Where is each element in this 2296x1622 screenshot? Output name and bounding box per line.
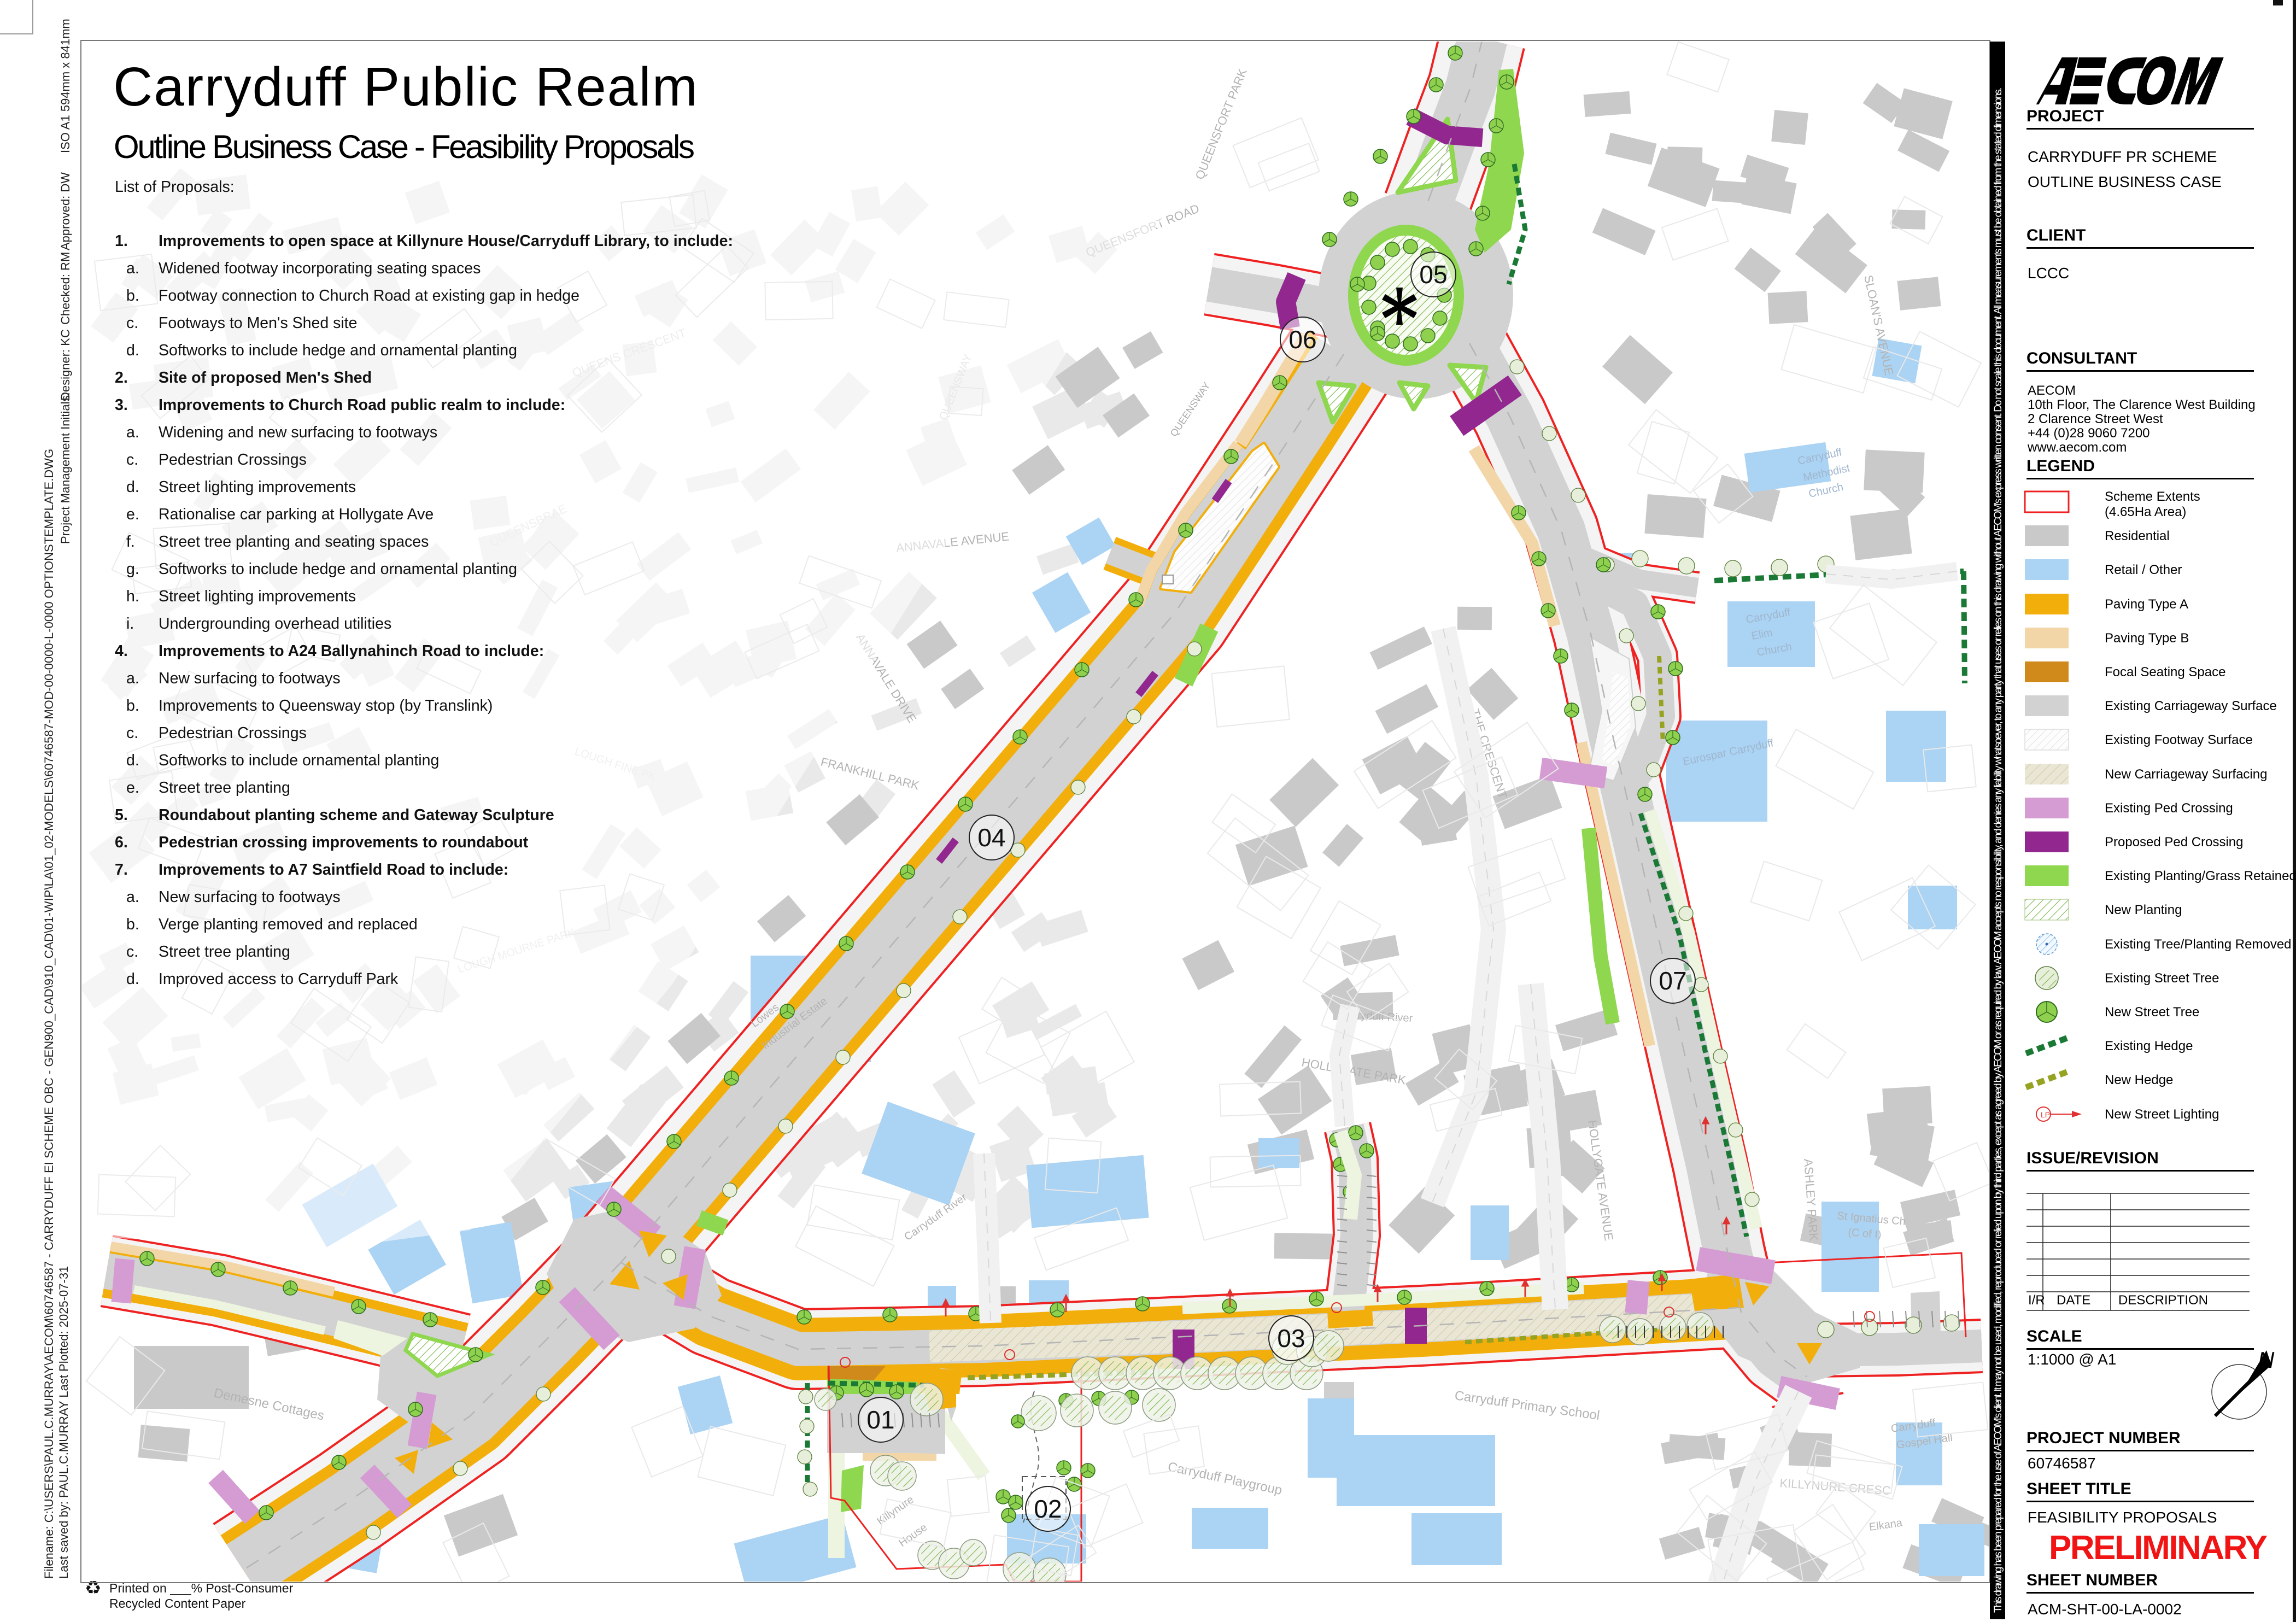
- svg-text:Widening and new surfacing to: Widening and new surfacing to footways: [159, 424, 437, 441]
- svg-text:c.: c.: [126, 943, 138, 961]
- svg-text:02: 02: [1034, 1495, 1062, 1523]
- svg-text:Existing Street Tree: Existing Street Tree: [2105, 971, 2219, 986]
- svg-text:New surfacing to footways: New surfacing to footways: [159, 888, 341, 906]
- svg-text:2 Clarence Street West: 2 Clarence Street West: [2028, 412, 2163, 426]
- svg-text:Retail / Other: Retail / Other: [2105, 563, 2182, 577]
- svg-text:CARRYDUFF PR SCHEME: CARRYDUFF PR SCHEME: [2028, 148, 2217, 165]
- svg-text:Improvements to A7 Saintfield: Improvements to A7 Saintfield Road to in…: [159, 861, 508, 879]
- svg-text:Designer: KC: Designer: KC: [58, 329, 72, 401]
- svg-text:10th Floor, The Clarence West: 10th Floor, The Clarence West Building: [2028, 397, 2256, 412]
- svg-text:New Street Lighting: New Street Lighting: [2105, 1107, 2219, 1122]
- svg-text:Undergrounding overhead utilit: Undergrounding overhead utilities: [159, 615, 391, 633]
- svg-text:CONSULTANT: CONSULTANT: [2026, 349, 2137, 367]
- svg-text:Footways to Men's Shed site: Footways to Men's Shed site: [159, 314, 357, 332]
- svg-text:Filename: C:\USERS\PAUL.C.MURR: Filename: C:\USERS\PAUL.C.MURRAY\AECOM\6…: [42, 449, 56, 1579]
- svg-text:DESCRIPTION: DESCRIPTION: [2118, 1293, 2208, 1308]
- svg-text:b.: b.: [126, 916, 139, 933]
- svg-text:Street tree planting: Street tree planting: [159, 779, 290, 797]
- svg-text:Approved: DW: Approved: DW: [58, 172, 72, 250]
- svg-text:CLIENT: CLIENT: [2026, 226, 2086, 244]
- svg-text:Proposed Ped Crossing: Proposed Ped Crossing: [2105, 835, 2243, 850]
- svg-text:c.: c.: [126, 451, 138, 469]
- svg-text:Street lighting improvements: Street lighting improvements: [159, 478, 356, 496]
- svg-text:2.: 2.: [115, 369, 128, 387]
- svg-text:Outline Business Case - Feasib: Outline Business Case - Feasibility Prop…: [114, 128, 695, 165]
- svg-text:h.: h.: [126, 588, 139, 605]
- svg-text:DATE: DATE: [2057, 1293, 2090, 1308]
- svg-text:New surfacing to footways: New surfacing to footways: [159, 670, 341, 687]
- svg-text:ACM-SHT-00-LA-0002: ACM-SHT-00-LA-0002: [2028, 1601, 2182, 1618]
- svg-text:b.: b.: [126, 697, 139, 715]
- svg-text:LEGEND: LEGEND: [2026, 457, 2095, 475]
- svg-text:a.: a.: [126, 260, 139, 277]
- svg-text:07: 07: [1659, 967, 1686, 995]
- svg-text:1:1000 @ A1: 1:1000 @ A1: [2028, 1351, 2116, 1368]
- svg-text:PROJECT: PROJECT: [2026, 107, 2104, 125]
- svg-text:3.: 3.: [115, 396, 128, 414]
- svg-text:c.: c.: [126, 724, 138, 742]
- svg-text:Pedestrian Crossings: Pedestrian Crossings: [159, 451, 307, 469]
- svg-text:i.: i.: [126, 615, 134, 633]
- svg-text:SCALE: SCALE: [2026, 1327, 2082, 1345]
- svg-text:f.: f.: [126, 533, 135, 551]
- svg-text:www.aecom.com: www.aecom.com: [2027, 440, 2127, 455]
- svg-text:Improvements to A24 Ballynahin: Improvements to A24 Ballynahinch Road to…: [159, 642, 544, 660]
- svg-text:04: 04: [977, 823, 1005, 852]
- svg-text:Improved access to Carryduff P: Improved access to Carryduff Park: [159, 970, 399, 988]
- svg-text:This drawing has been prepared: This drawing has been prepared for the u…: [1993, 87, 2004, 1613]
- svg-text:Existing Tree/Planting Removed: Existing Tree/Planting Removed: [2105, 937, 2292, 952]
- svg-text:6.: 6.: [115, 834, 128, 851]
- svg-text:FEASIBILITY PROPOSALS: FEASIBILITY PROPOSALS: [2028, 1509, 2217, 1526]
- svg-text:(4.65Ha Area): (4.65Ha Area): [2105, 505, 2186, 519]
- svg-text:06: 06: [1288, 325, 1316, 354]
- svg-text:Project Management Initials:: Project Management Initials:: [58, 392, 72, 544]
- svg-text:Softworks to include ornamenta: Softworks to include ornamental planting: [159, 752, 439, 769]
- svg-text:d.: d.: [126, 752, 139, 769]
- svg-text:01: 01: [866, 1406, 894, 1434]
- svg-text:b.: b.: [126, 287, 139, 305]
- svg-text:1.: 1.: [115, 232, 128, 250]
- svg-text:Site of proposed Men's Shed: Site of proposed Men's Shed: [159, 369, 372, 387]
- svg-text:5.: 5.: [115, 806, 128, 824]
- svg-text:New Planting: New Planting: [2105, 903, 2182, 917]
- svg-text:Last saved by: PAUL.C.MURRAY: Last saved by: PAUL.C.MURRAY Last Plotte…: [57, 1266, 71, 1579]
- svg-text:Widened footway incorporating: Widened footway incorporating seating sp…: [159, 260, 481, 277]
- svg-text:Checked: RM: Checked: RM: [58, 252, 72, 325]
- svg-text:Paving Type A: Paving Type A: [2105, 597, 2188, 612]
- svg-text:Footway connection to Church R: Footway connection to Church Road at exi…: [159, 287, 579, 305]
- svg-text:Residential: Residential: [2105, 529, 2170, 543]
- svg-text:a.: a.: [126, 670, 139, 687]
- svg-text:Street tree planting: Street tree planting: [159, 943, 290, 961]
- svg-text:Improvements to Queensway stop: Improvements to Queensway stop (by Trans…: [159, 697, 493, 715]
- svg-text:e.: e.: [126, 779, 139, 797]
- svg-text:♻: ♻: [85, 1578, 101, 1598]
- svg-text:Pedestrian crossing improvemen: Pedestrian crossing improvements to roun…: [159, 834, 529, 851]
- svg-text:Existing Ped Crossing: Existing Ped Crossing: [2105, 801, 2233, 816]
- svg-text:PROJECT NUMBER: PROJECT NUMBER: [2026, 1429, 2181, 1447]
- svg-text:Existing Footway Surface: Existing Footway Surface: [2105, 733, 2253, 747]
- svg-text:SHEET TITLE: SHEET TITLE: [2026, 1480, 2131, 1498]
- svg-text:OUTLINE BUSINESS CASE: OUTLINE BUSINESS CASE: [2028, 173, 2222, 190]
- svg-text:Roundabout planting scheme and: Roundabout planting scheme and Gateway S…: [159, 806, 554, 824]
- svg-text:Improvements to Church Road pu: Improvements to Church Road public realm…: [159, 396, 565, 414]
- svg-text:Verge planting removed and rep: Verge planting removed and replaced: [159, 916, 418, 933]
- svg-text:ISO A1 594mm x 841mm: ISO A1 594mm x 841mm: [58, 19, 72, 153]
- svg-text:60746587: 60746587: [2028, 1455, 2096, 1472]
- svg-text:Pedestrian Crossings: Pedestrian Crossings: [159, 724, 307, 742]
- svg-text:d.: d.: [126, 970, 139, 988]
- svg-text:LP: LP: [2041, 1110, 2050, 1119]
- svg-text:New Carriageway Surfacing: New Carriageway Surfacing: [2105, 767, 2267, 782]
- svg-text:N: N: [2258, 1347, 2275, 1373]
- svg-text:Softworks to include hedge and: Softworks to include hedge and ornamenta…: [159, 342, 517, 359]
- svg-text:c.: c.: [126, 314, 138, 332]
- svg-text:New Street Tree: New Street Tree: [2105, 1005, 2199, 1020]
- svg-text:Carryduff Public Realm: Carryduff Public Realm: [113, 56, 698, 118]
- svg-text:LCCC: LCCC: [2028, 265, 2069, 282]
- svg-text:ISSUE/REVISION: ISSUE/REVISION: [2026, 1149, 2159, 1167]
- svg-text:Recycled Content Paper: Recycled Content Paper: [109, 1596, 246, 1611]
- svg-text:PRELIMINARY: PRELIMINARY: [2049, 1529, 2268, 1567]
- svg-text:Existing Carriageway Surface: Existing Carriageway Surface: [2105, 699, 2277, 713]
- svg-text:d.: d.: [126, 478, 139, 496]
- svg-text:Existing Planting/Grass Retain: Existing Planting/Grass Retained: [2105, 869, 2296, 883]
- svg-text:New Hedge: New Hedge: [2105, 1073, 2173, 1087]
- svg-text:g.: g.: [126, 560, 139, 578]
- svg-text:d.: d.: [126, 342, 139, 359]
- svg-text:4.: 4.: [115, 642, 128, 660]
- svg-text:Rationalise car parking at Hol: Rationalise car parking at Hollygate Ave: [159, 506, 434, 523]
- svg-text:a.: a.: [126, 424, 139, 441]
- svg-text:Street tree planting and seati: Street tree planting and seating spaces: [159, 533, 429, 551]
- svg-text:Focal Seating Space: Focal Seating Space: [2105, 665, 2225, 680]
- svg-text:03: 03: [1277, 1324, 1305, 1352]
- svg-text:List of Proposals:: List of Proposals:: [115, 178, 235, 196]
- svg-text:7.: 7.: [115, 861, 128, 879]
- svg-text:AECOM: AECOM: [2028, 383, 2076, 398]
- svg-text:SHEET NUMBER: SHEET NUMBER: [2026, 1571, 2158, 1589]
- svg-text:I/R: I/R: [2028, 1293, 2045, 1308]
- svg-text:+44 (0)28 9060 7200: +44 (0)28 9060 7200: [2028, 426, 2150, 441]
- svg-text:Existing Hedge: Existing Hedge: [2105, 1039, 2193, 1053]
- svg-text:e.: e.: [126, 506, 139, 523]
- svg-text:Softworks to include hedge and: Softworks to include hedge and ornamenta…: [159, 560, 517, 578]
- svg-text:Scheme Extents: Scheme Extents: [2105, 489, 2200, 504]
- svg-text:05: 05: [1419, 260, 1447, 289]
- svg-text:Improvements to open space at: Improvements to open space at Killynure …: [159, 232, 733, 250]
- svg-text:Street lighting improvements: Street lighting improvements: [159, 588, 356, 605]
- svg-text:Paving Type B: Paving Type B: [2105, 631, 2189, 646]
- svg-text:a.: a.: [126, 888, 139, 906]
